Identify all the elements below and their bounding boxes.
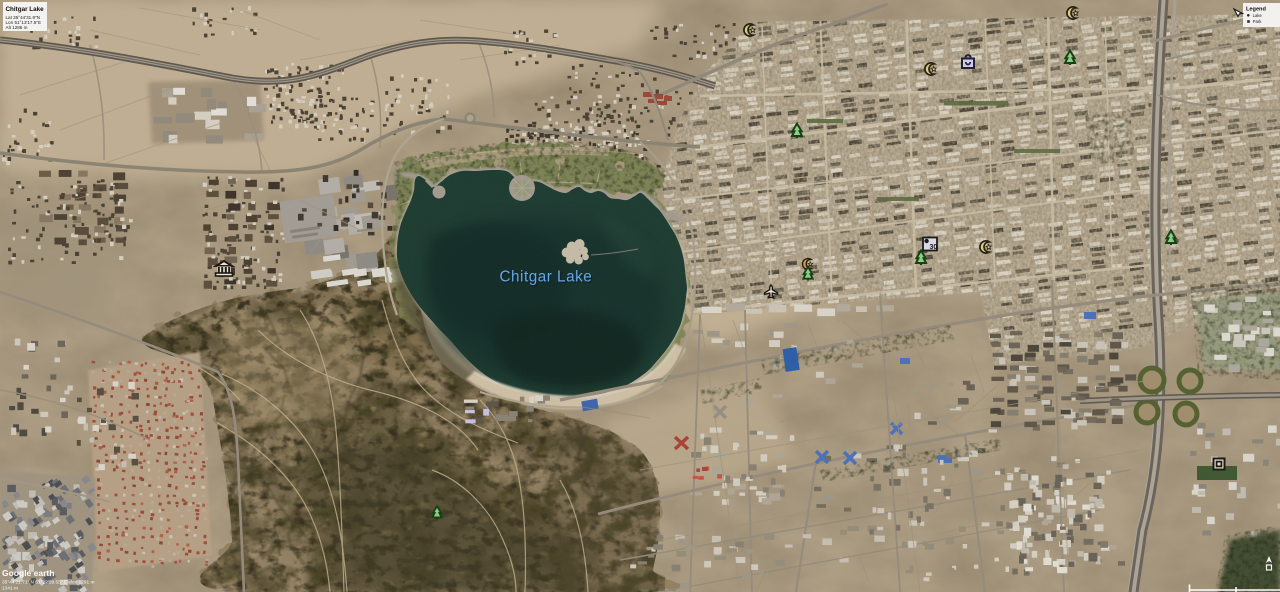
svg-text:1341 m: 1341 m <box>2 586 18 592</box>
svg-text:Google earth: Google earth <box>2 568 54 578</box>
svg-text:Chitgar Lake: Chitgar Lake <box>6 6 45 13</box>
svg-text:Chitgar Lake: Chitgar Lake <box>500 269 593 286</box>
svg-text:Lake: Lake <box>1253 13 1263 18</box>
svg-text:Alt 1286 m: Alt 1286 m <box>6 25 28 30</box>
svg-text:35°44'21.71" N 51°12'29.55" E: 35°44'21.71" N 51°12'29.55" E elev 1291 … <box>2 580 95 586</box>
svg-text:Park: Park <box>1253 19 1263 24</box>
svg-text:Legend: Legend <box>1246 7 1266 13</box>
